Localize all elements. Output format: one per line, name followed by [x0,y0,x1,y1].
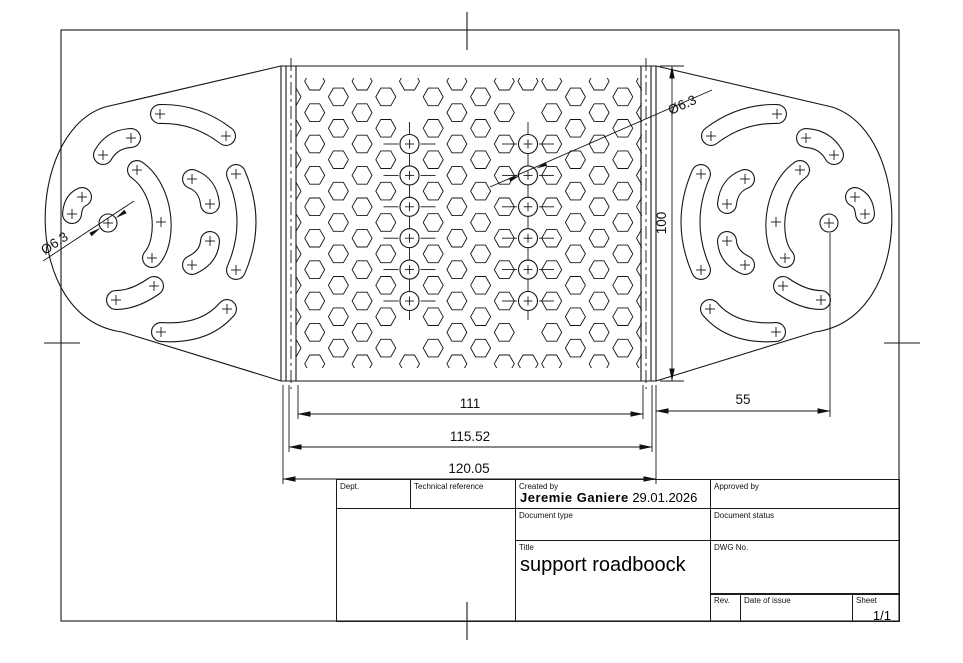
title-block-cell-created-by: Created by Jeremie Ganiere 29.01.2026 [515,479,711,509]
dim-text-inner-width: 111 [460,396,481,411]
document-type-label: Document type [516,509,710,520]
dim-text-outer-width: 120.05 [448,461,489,476]
sheet-value: 1/1 [853,605,899,623]
end-plate-left [45,58,296,389]
title-block-cell-dept: Dept. [336,479,411,509]
title-block-cell-dwg-no: DWG No. [710,540,900,595]
title-block-cell-approved-by: Approved by [710,479,900,509]
title-block-cell-empty [336,508,516,622]
dim-text-mid-width: 115.52 [450,429,490,444]
sheet-label: Sheet [853,594,899,605]
dept-label: Dept. [337,480,410,491]
document-status-label: Document status [711,509,899,520]
slot-cutouts [67,109,247,337]
dwg-no-label: DWG No. [711,541,899,552]
title-block-cell-rev: Rev. [710,593,741,622]
title-label: Title [516,541,710,552]
title-block-cell-document-status: Document status [710,508,900,541]
date-of-issue-label: Date of issue [741,594,852,605]
drawing-sheet: 111 115.52 120.05 55 100 Ø6.3 Ø6.3 Dept.… [0,0,963,663]
dim-text-end-offset: 55 [735,392,750,407]
created-date: 29.01.2026 [632,490,697,505]
title-block-cell-technical-reference: Technical reference [410,479,516,509]
technical-reference-label: Technical reference [411,480,515,491]
pilot-hole-columns [384,122,555,320]
approved-by-label: Approved by [711,480,899,491]
created-by-name: Jeremie Ganiere [520,490,629,505]
rev-label: Rev. [711,594,740,605]
title-block-cell-sheet: Sheet 1/1 [852,593,900,622]
title-block-cell-document-type: Document type [515,508,711,541]
dim-text-height: 100 [654,212,669,235]
drawing-title: support roadboock [516,552,710,577]
title-block-cell-title: Title support roadboock [515,540,711,622]
dia-text-right: Ø6.3 [666,92,699,118]
dimensions: 111 115.52 120.05 55 100 [283,66,830,484]
hex-perforation-pattern [281,72,657,372]
title-block: Dept. Technical reference Created by Jer… [336,479,899,621]
title-block-cell-date-of-issue: Date of issue [740,593,853,622]
center-plate [281,66,656,381]
